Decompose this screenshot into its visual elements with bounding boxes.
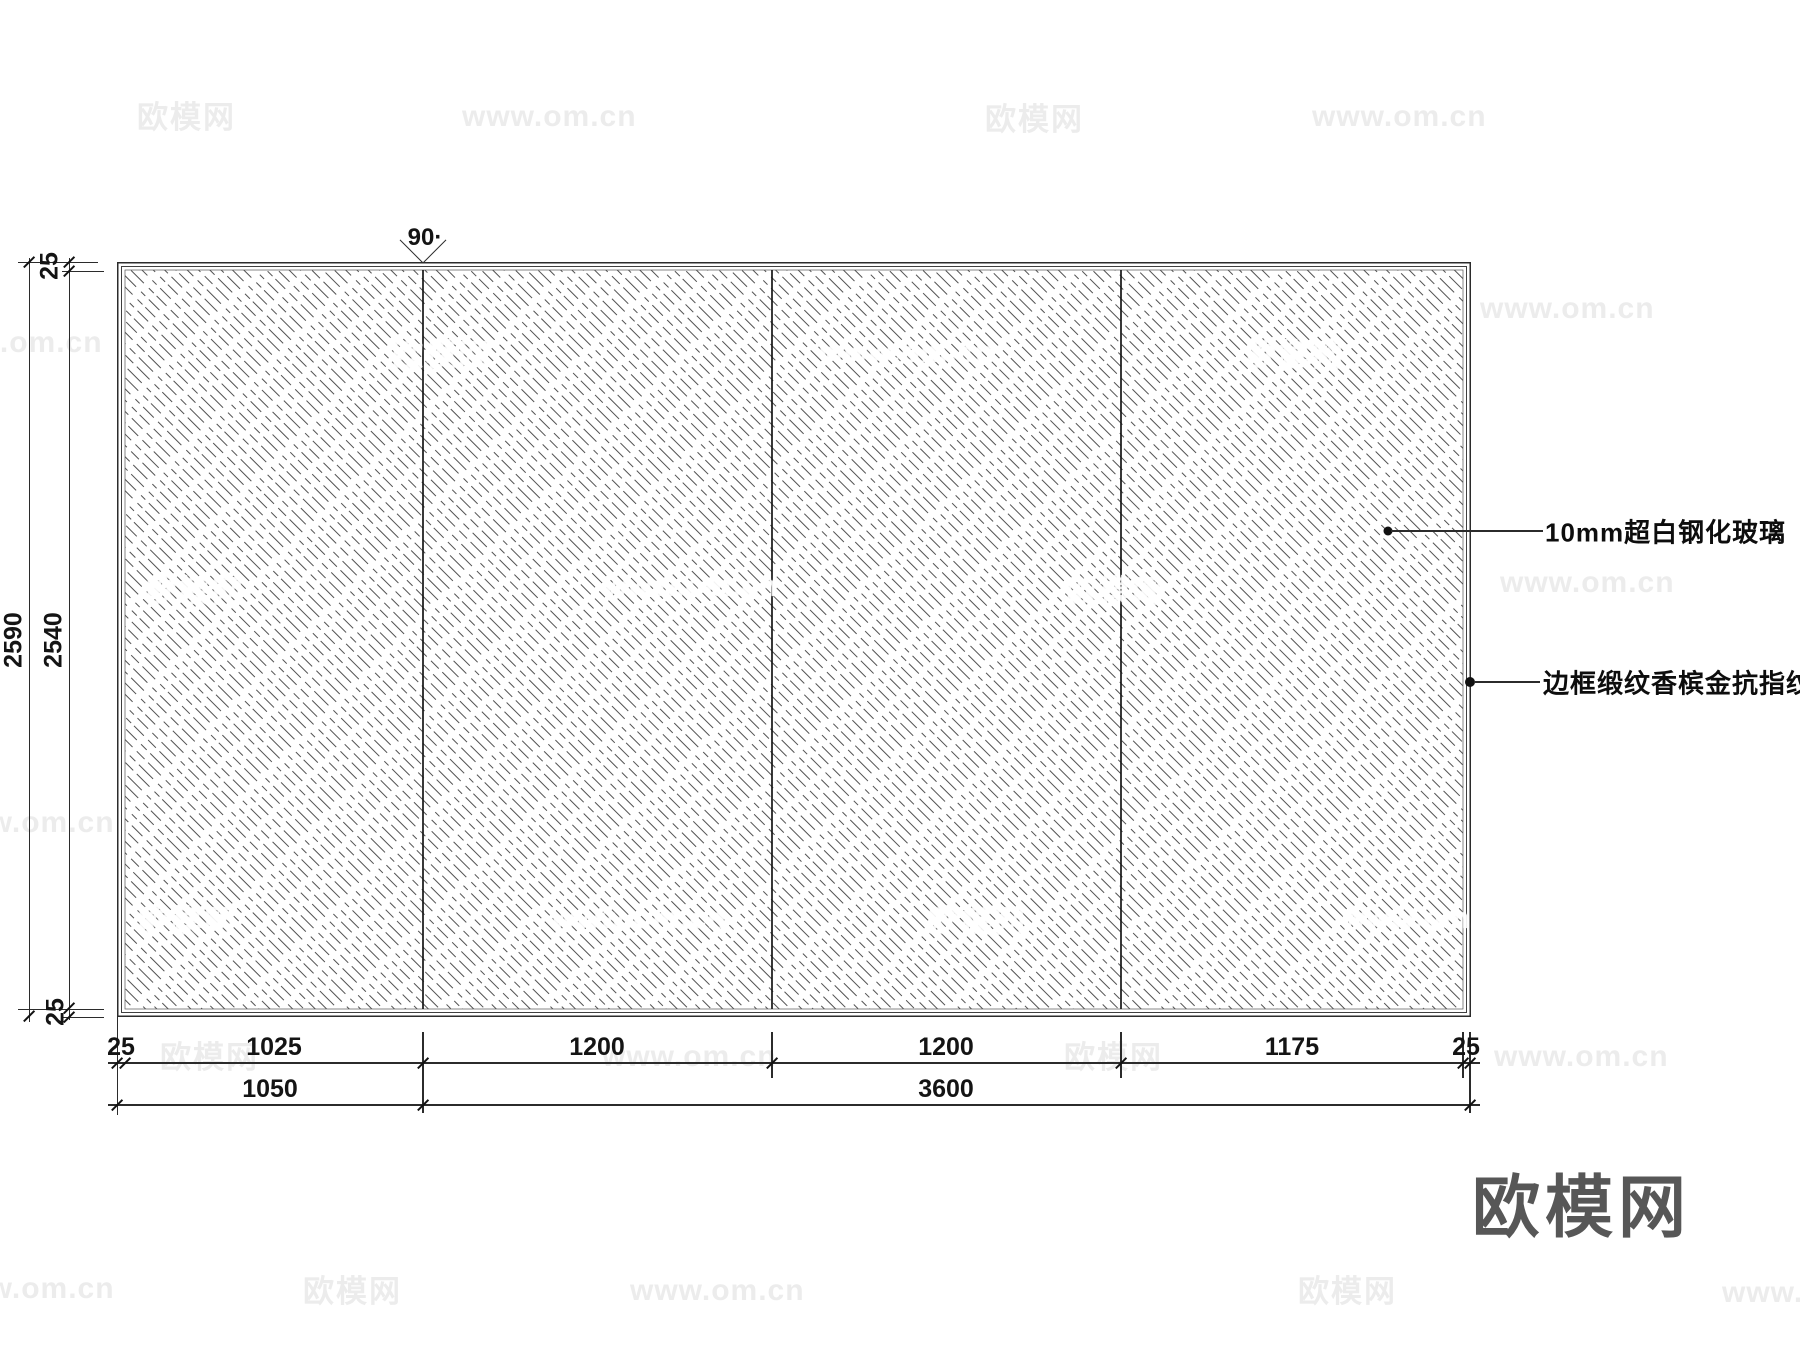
watermark-site: www.om.cn: [1494, 1040, 1669, 1074]
extension-line: [117, 1016, 118, 1115]
watermark-site: www.om.cn: [602, 1040, 777, 1074]
glass-hatch-area: [125, 270, 1463, 1009]
dim-text-1175: 1175: [1265, 1033, 1319, 1062]
dim-text-1200-b: 1200: [918, 1033, 974, 1062]
glass-spec-label: 10mm超白钢化玻璃: [1545, 513, 1786, 550]
site-logo: 欧模网: [1472, 1152, 1691, 1251]
watermark-site: www.om.cn: [1480, 292, 1655, 326]
cad-elevation-sheet: 欧模网www.om.cn欧模网www.om.cnwww.om.cn欧模网www.…: [0, 0, 1800, 1347]
watermark-site: www.om.cn: [0, 806, 115, 840]
leader-line-frame: [1474, 681, 1540, 682]
dim-text-glass-height: 2540: [40, 612, 69, 668]
watermark-site: www.om.cn: [1722, 1276, 1800, 1310]
dim-text-1200-a: 1200: [569, 1033, 625, 1062]
dim-text-1050: 1050: [242, 1075, 298, 1104]
leader-line-glass: [1391, 530, 1543, 531]
watermark-site: www.om.cn: [0, 326, 103, 360]
extension-line: [422, 1032, 423, 1113]
watermark-site: www.om.cn: [0, 1272, 115, 1306]
dim-text-bottom-frame: 25: [42, 998, 71, 1026]
watermark-site: www.om.cn: [630, 1274, 805, 1308]
frame-spec-label: 边框缎纹香槟金抗指纹: [1543, 664, 1800, 701]
watermark-brand: 欧模网: [303, 1266, 402, 1311]
dim-text-25-right: 25: [1452, 1033, 1480, 1062]
watermark-brand: 欧模网: [160, 1032, 259, 1077]
extension-line: [1120, 1032, 1121, 1078]
watermark-brand: 欧模网: [137, 92, 236, 137]
dim-text-3600: 3600: [918, 1075, 974, 1104]
dim-text-overall-height: 2590: [0, 612, 29, 668]
dim-text-top-frame: 25: [36, 252, 65, 280]
watermark-site: www.om.cn: [1500, 566, 1675, 600]
watermark-brand: 欧模网: [985, 94, 1084, 139]
partition-drawing: [117, 262, 1471, 1017]
extension-line: [771, 1032, 772, 1078]
dim-text-25-left: 25: [107, 1033, 135, 1062]
watermark-brand: 欧模网: [1064, 1032, 1163, 1077]
dim-text-1025: 1025: [246, 1033, 302, 1062]
dim-line-row1: [108, 1062, 1480, 1063]
dim-line: [69, 258, 70, 1020]
watermark-site: www.om.cn: [1312, 100, 1487, 134]
dim-line: [29, 258, 30, 1022]
watermark-site: www.om.cn: [462, 100, 637, 134]
watermark-brand: 欧模网: [1298, 1266, 1397, 1311]
dim-line-row2: [108, 1104, 1480, 1105]
